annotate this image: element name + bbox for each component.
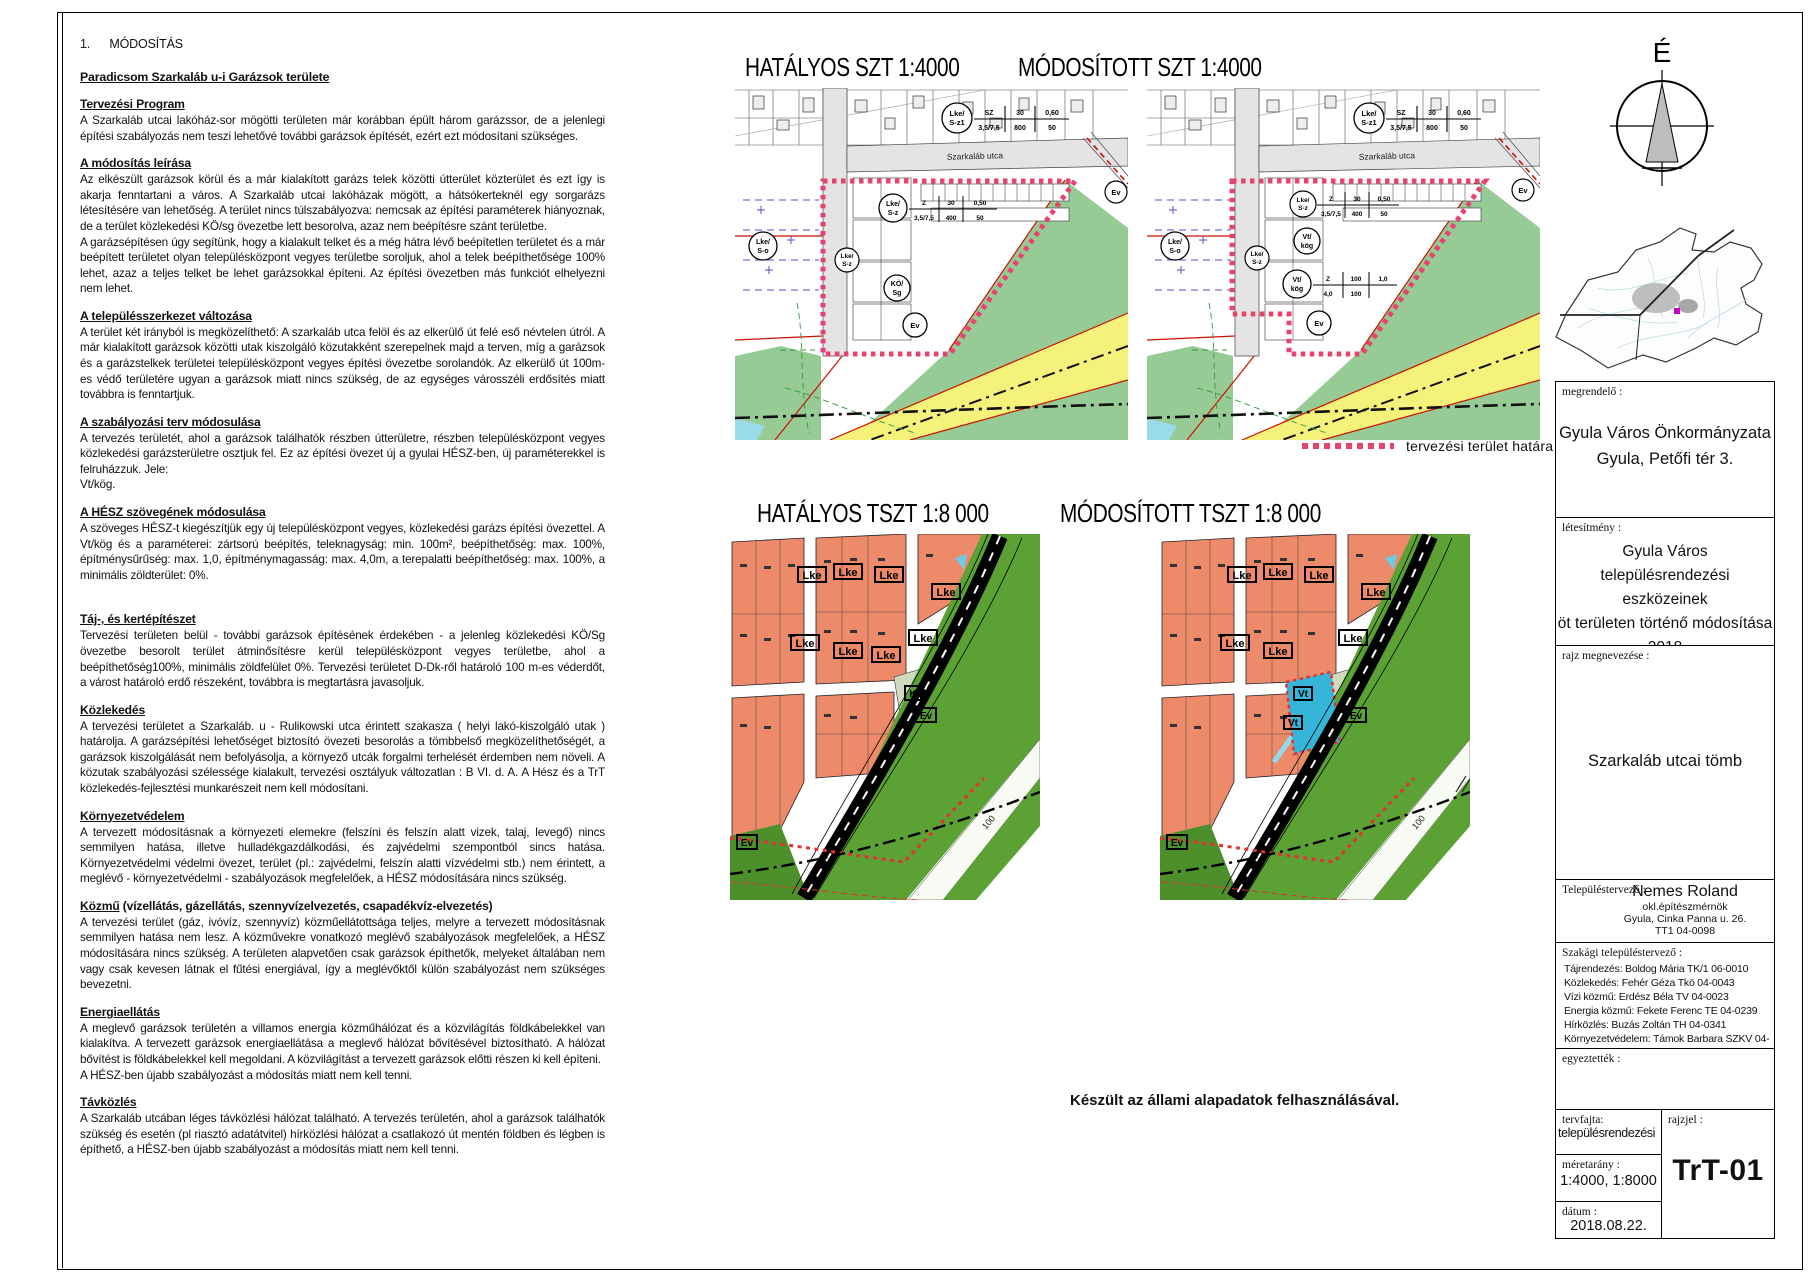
planning-boundary-swatch	[1302, 443, 1394, 449]
meta-grid: tervfajta: településrendezési méretarány…	[1555, 1109, 1775, 1239]
svg-text:S-o: S-o	[757, 248, 768, 255]
chapter-heading: 1. MÓDOSÍTÁS	[80, 36, 605, 53]
svg-text:Lke: Lke	[839, 567, 858, 579]
svg-text:30: 30	[1016, 110, 1024, 117]
svg-text:0,60: 0,60	[1457, 110, 1471, 117]
map-title-tszt-modified: MÓDOSÍTOTT TSZT 1:8 000	[1060, 498, 1386, 529]
svg-text:Ev: Ev	[741, 838, 754, 849]
svg-text:Vt/: Vt/	[1293, 277, 1302, 284]
section-tavkozles: Távközlés A Szarkaláb utcában léges távk…	[80, 1094, 605, 1158]
svg-text:Sg: Sg	[893, 290, 902, 297]
svg-text:S-z: S-z	[842, 261, 853, 268]
north-label: É	[1653, 37, 1672, 68]
section-body: A tervezett módosításnak a környezeti el…	[80, 825, 605, 887]
drawing-label: rajz megnevezése :	[1556, 646, 1774, 662]
urban-area-2	[1678, 299, 1698, 313]
svg-text:Ev: Ev	[1518, 186, 1528, 195]
svg-text:Lke: Lke	[914, 633, 933, 645]
specialists-label: Szakági településtervező :	[1556, 943, 1774, 959]
svg-text:S-z1: S-z1	[1361, 118, 1376, 127]
svg-text:SZ: SZ	[985, 110, 995, 117]
svg-text:Vt: Vt	[1298, 689, 1309, 700]
section-taj-kertepiteszet: Táj-, és kertépítészet Tervezési terület…	[80, 611, 605, 690]
section-heading: Tervezési Program	[80, 97, 185, 111]
section-telepulesszerkezet: A településszerkezet változása A terület…	[80, 308, 605, 403]
svg-text:30: 30	[1428, 110, 1436, 117]
street-label: Szarkaláb utca	[1359, 150, 1416, 161]
section-heading: Táj-, és kertépítészet	[80, 612, 196, 626]
svg-text:Lke/: Lke/	[1361, 109, 1377, 118]
svg-text:Lke: Lke	[880, 570, 899, 582]
svg-text:K: K	[909, 689, 917, 700]
svg-text:Lke: Lke	[1269, 567, 1288, 579]
svg-text:400: 400	[1352, 211, 1363, 218]
svg-text:3,5/7,5: 3,5/7,5	[1390, 125, 1412, 132]
section-body: A tervezési területet a Szarkaláb. u - R…	[80, 719, 605, 797]
section-kozlekedes: Közlekedés A tervezési területet a Szark…	[80, 702, 605, 797]
svg-text:0,50: 0,50	[1378, 196, 1391, 203]
chapter-title: MÓDOSÍTÁS	[109, 37, 183, 51]
date-cell: dátum : 2018.08.22.	[1556, 1202, 1661, 1236]
map-title-tszt-current: HATÁLYOS TSZT 1:8 000	[757, 498, 1047, 529]
project-box: létesítmény : Gyula Város településrende…	[1555, 517, 1775, 647]
map-tszt-modified: 100 Lke Lke Lke Lke Lke Lke Lke Vt Vt Ev…	[1160, 534, 1470, 900]
svg-text:Lke: Lke	[803, 570, 822, 582]
street-label: Szarkaláb utca	[947, 150, 1004, 161]
svg-text:Ev: Ev	[1314, 319, 1324, 328]
svg-text:0,50: 0,50	[974, 200, 987, 207]
svg-text:S-z: S-z	[1252, 259, 1263, 266]
section-kozmu: Közmű (vízellátás, gázellátás, szennyvíz…	[80, 898, 605, 993]
svg-text:Vt/: Vt/	[1303, 234, 1312, 241]
svg-text:Lke: Lke	[1226, 638, 1245, 650]
svg-text:Lke/: Lke/	[840, 253, 853, 260]
svg-text:Ev: Ev	[1111, 188, 1121, 197]
page-frame-inner-line	[62, 12, 63, 1268]
svg-text:S-z: S-z	[1298, 205, 1309, 212]
svg-text:Lke: Lke	[937, 587, 956, 599]
drawing-code: TrT-01	[1662, 1154, 1774, 1188]
svg-text:3,5/7,5: 3,5/7,5	[914, 215, 934, 222]
section-heading: Környezetvédelem	[80, 809, 184, 823]
svg-text:50: 50	[1460, 125, 1468, 132]
date-value: 2018.08.22.	[1556, 1218, 1661, 1234]
svg-text:800: 800	[1426, 125, 1438, 132]
svg-text:Lke: Lke	[1269, 646, 1288, 658]
client-address: Gyula, Petőfi tér 3.	[1556, 450, 1774, 469]
client-box: megrendelő : Gyula Város Önkormányzata G…	[1555, 381, 1775, 518]
svg-text:30: 30	[947, 200, 955, 207]
section-kornyezetvedelem: Környezetvédelem A tervezett módosításna…	[80, 808, 605, 887]
scale-label: méretarány :	[1556, 1155, 1661, 1171]
client-name: Gyula Város Önkormányzata	[1556, 424, 1774, 443]
project-line: településrendezési eszközeinek	[1556, 564, 1774, 612]
scale-value: 1:4000, 1:8000	[1556, 1173, 1661, 1189]
svg-text:Lke: Lke	[1367, 587, 1386, 599]
planner-address: Gyula, Cinka Panna u. 26.	[1596, 913, 1774, 925]
svg-text:100: 100	[1351, 276, 1362, 283]
svg-text:S-z: S-z	[888, 210, 899, 217]
scale-cell: méretarány : 1:4000, 1:8000	[1556, 1155, 1661, 1202]
svg-text:0,60: 0,60	[1045, 110, 1059, 117]
svg-text:kög: kög	[1291, 286, 1303, 293]
svg-text:Ev: Ev	[920, 711, 933, 722]
drawing-name-box: rajz megnevezése : Szarkaláb utcai tömb	[1555, 645, 1775, 880]
section-heading: Távközlés	[80, 1095, 136, 1109]
svg-text:Ev: Ev	[910, 321, 920, 330]
project-line: Gyula Város	[1556, 540, 1774, 564]
plan-type-label: tervfajta:	[1556, 1110, 1661, 1126]
project-line: öt területen történő módosítása	[1556, 612, 1774, 636]
report-text-column: 1. MÓDOSÍTÁS Paradicsom Szarkaláb u-i Ga…	[80, 36, 605, 1158]
svg-text:3,5/7,5: 3,5/7,5	[978, 125, 1000, 132]
section-body: A Szarkaláb utcában léges távközlési hál…	[80, 1111, 605, 1158]
specialists-box: Szakági településtervező : Tájrendezés: …	[1555, 942, 1775, 1050]
chapter-number: 1.	[80, 36, 106, 53]
project-label: létesítmény :	[1556, 518, 1774, 534]
specialist-row: Közlekedés: Fehér Géza Tkö 04-0043	[1564, 976, 1772, 990]
specialist-row: Tájrendezés: Boldog Mária TK/1 06-0010	[1564, 962, 1772, 976]
svg-text:1,0: 1,0	[1378, 276, 1387, 283]
svg-text:800: 800	[1014, 125, 1026, 132]
section-energiaellatas: Energiaellátás A meglevő garázsok terüle…	[80, 1004, 605, 1083]
svg-text:KÖ/: KÖ/	[891, 279, 904, 288]
svg-text:Lke/: Lke/	[756, 239, 770, 246]
section-heading: Energiaellátás	[80, 1005, 160, 1019]
section-body: Tervezési területen belül - további gará…	[80, 628, 605, 690]
svg-text:Z: Z	[1329, 196, 1333, 203]
map-title-szt-modified: MÓDOSÍTOTT SZT 1:4000	[1018, 52, 1322, 83]
code-label: rajzjel :	[1662, 1110, 1774, 1126]
client-label: megrendelő :	[1556, 382, 1774, 398]
svg-text:Lke: Lke	[1233, 570, 1252, 582]
section-body: A meglevő garázsok területén a villamos …	[80, 1021, 605, 1083]
svg-text:3,5/7,5: 3,5/7,5	[1321, 211, 1341, 218]
section-body: A Szarkaláb utcai lakóház-sor mögötti te…	[80, 113, 605, 144]
svg-text:SZ: SZ	[1397, 110, 1407, 117]
north-arrow-icon: É	[1600, 34, 1724, 194]
area-title: Paradicsom Szarkaláb u-i Garázsok terüle…	[80, 69, 605, 85]
section-body: A szöveges HÉSZ-t kiegészítjük egy új te…	[80, 521, 605, 583]
svg-text:50: 50	[1048, 125, 1056, 132]
svg-text:Lke: Lke	[1344, 633, 1363, 645]
section-body: A tervezési terület (gáz, ivóvíz, szenny…	[80, 915, 605, 993]
section-body: Az elkészült garázsok körül és a már kia…	[80, 172, 605, 297]
svg-text:Lke: Lke	[1310, 570, 1329, 582]
map-szt-modified: Szarkaláb utca Lke/ S-z1 SZ 30 0,60 3,5/…	[1147, 88, 1540, 440]
svg-text:Lke: Lke	[839, 646, 858, 658]
planner-reg: TT1 04-0098	[1596, 925, 1774, 937]
footer-note: Készült az állami alapadatok felhasználá…	[1070, 1092, 1399, 1109]
street-vertical	[1235, 88, 1259, 356]
section-szabalyozasi-terv: A szabályozási terv módosulása A tervezé…	[80, 414, 605, 493]
section-heading: A településszerkezet változása	[80, 309, 252, 323]
zone-label: S-z1	[949, 118, 964, 127]
svg-text:Lke/: Lke/	[1250, 251, 1263, 258]
map-szt-current: Szarkaláb utca Lke/ S-z1 SZ 30 0,60 3,5/…	[735, 88, 1128, 440]
svg-text:Z: Z	[1326, 276, 1330, 283]
plan-type-value: településrendezési	[1556, 1126, 1661, 1140]
title-block: megrendelő : Gyula Város Önkormányzata G…	[1555, 383, 1775, 1239]
section-modositas-leirasa: A módosítás leírása Az elkészült garázso…	[80, 155, 605, 297]
specialist-row: Energia közmű: Fekete Ferenc TE 04-0239	[1564, 1004, 1772, 1018]
section-body: A tervezés területét, ahol a garázsok ta…	[80, 431, 605, 493]
svg-text:Lke/: Lke/	[1168, 239, 1182, 246]
specialist-row: Vízi közmű: Erdész Béla TV 04-0023	[1564, 990, 1772, 1004]
svg-text:400: 400	[946, 215, 957, 222]
legend-label: tervezési terület határa	[1406, 438, 1553, 454]
section-heading: Közmű	[80, 899, 120, 913]
map-title-szt-current: HATÁLYOS SZT 1:4000	[745, 52, 1013, 83]
specialist-row: Hírközlés: Buzás Zoltán TH 04-0341	[1564, 1018, 1772, 1032]
planner-title: okl.építészmérnök	[1596, 901, 1774, 913]
section-heading: Közlekedés	[80, 703, 145, 717]
svg-text:Lke: Lke	[877, 650, 896, 662]
approved-label: egyeztették :	[1556, 1049, 1774, 1065]
map-legend: tervezési terület határa	[1302, 438, 1553, 454]
svg-text:Ev: Ev	[1350, 711, 1363, 722]
map-tszt-current: 100 Lke Lke Lke Lke Lke Lke Lke Lke K Ev…	[730, 534, 1040, 900]
svg-text:kög: kög	[1301, 243, 1313, 250]
svg-text:100: 100	[1351, 291, 1362, 298]
planner-label: Településtervező :	[1556, 880, 1646, 896]
svg-text:Vt: Vt	[1288, 718, 1299, 729]
svg-text:Z: Z	[922, 200, 926, 207]
planning-site-marker	[1674, 308, 1680, 314]
svg-text:S-o: S-o	[1169, 248, 1180, 255]
section-tervezesi-program: Tervezési Program A Szarkaláb utcai lakó…	[80, 96, 605, 144]
section-heading: A módosítás leírása	[80, 156, 191, 170]
street-vertical	[823, 88, 847, 356]
svg-text:4,0: 4,0	[1323, 291, 1332, 298]
section-body: A terület két irányból is megközelíthető…	[80, 325, 605, 403]
location-map	[1548, 218, 1778, 378]
section-hesz-szoveg: A HÉSZ szövegének módosulása A szöveges …	[80, 504, 605, 583]
section-heading: A szabályozási terv módosulása	[80, 415, 261, 429]
planner-box: Településtervező : Nemes Roland okl.épít…	[1555, 879, 1775, 944]
zone-label: Lke/	[949, 109, 965, 118]
drawing-name: Szarkaláb utcai tömb	[1556, 752, 1774, 771]
svg-text:50: 50	[1380, 211, 1388, 218]
code-cell: rajzjel : TrT-01	[1662, 1110, 1774, 1238]
svg-text:30: 30	[1353, 196, 1361, 203]
plan-type-cell: tervfajta: településrendezési	[1556, 1110, 1661, 1155]
svg-text:50: 50	[976, 215, 984, 222]
section-heading: A HÉSZ szövegének módosulása	[80, 505, 266, 519]
svg-text:Lke/: Lke/	[1296, 197, 1309, 204]
svg-text:Lke/: Lke/	[886, 201, 900, 208]
approved-box: egyeztették :	[1555, 1048, 1775, 1110]
svg-text:Lke: Lke	[796, 638, 815, 650]
svg-text:Ev: Ev	[1171, 838, 1184, 849]
date-label: dátum :	[1556, 1202, 1661, 1218]
